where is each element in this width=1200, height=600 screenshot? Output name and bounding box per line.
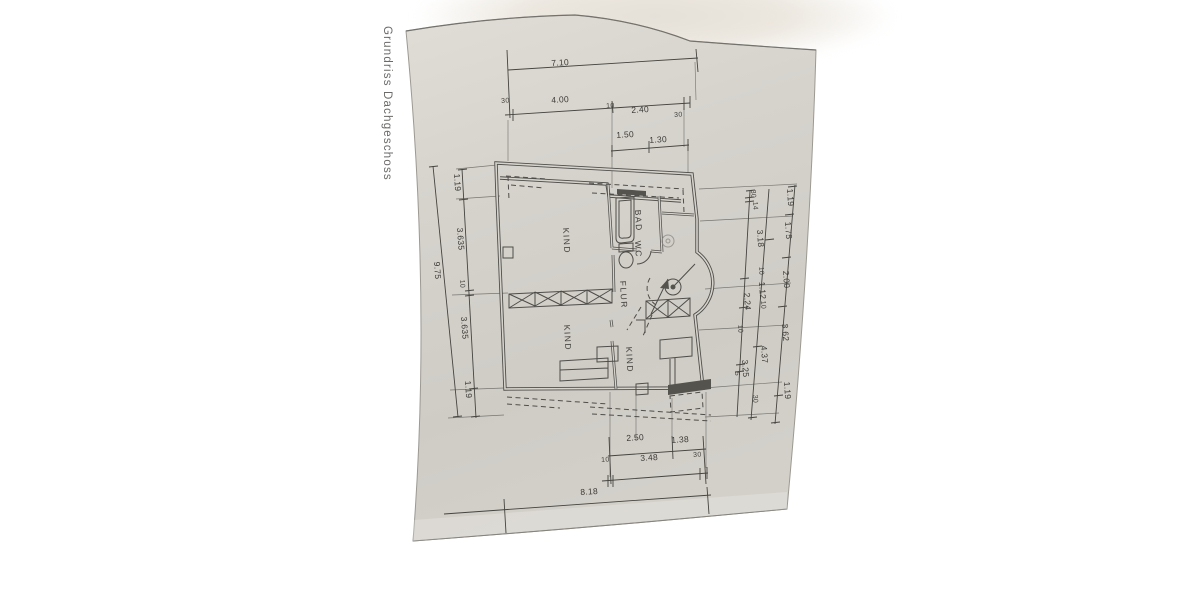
- room-label-kind-3: KIND: [624, 346, 635, 373]
- dim-label: 2.40: [631, 104, 649, 115]
- paper-sheet: [406, 15, 816, 541]
- dim-label: 8.18: [580, 486, 598, 497]
- dim-label: 1.75: [783, 221, 794, 239]
- floorplan-drawing: [0, 0, 1200, 600]
- dim-label: 30: [693, 451, 702, 458]
- dim-label: 1.19: [785, 188, 796, 206]
- dim-label: 1.19: [782, 381, 793, 399]
- dim-label: 1.50: [616, 129, 634, 140]
- dim-label: 10: [601, 456, 610, 463]
- dim-label: 2.50: [626, 432, 644, 443]
- dim-label: 3.62: [780, 323, 791, 341]
- dim-label: 14: [751, 202, 759, 211]
- dim-label: 4.00: [551, 94, 569, 105]
- room-label-kind-2: KIND: [562, 324, 573, 351]
- dim-label: 9.75: [432, 261, 443, 279]
- dim-label: 5: [733, 372, 740, 377]
- dim-label: 3.25: [740, 359, 751, 377]
- dim-label: 30: [751, 395, 759, 404]
- room-label-kind-1: KIND: [561, 227, 572, 254]
- dim-label: 10: [458, 280, 466, 289]
- dim-label: 10: [606, 102, 615, 109]
- room-label-flur: FLUR: [618, 280, 629, 309]
- dim-label: 1.19: [463, 380, 474, 398]
- dim-label: 10: [759, 301, 767, 310]
- dim-label: 1.12: [757, 281, 768, 299]
- room-label-bad: BAD: [633, 209, 644, 231]
- dim-label: 3.635: [455, 227, 467, 250]
- room-label-wc: WC: [633, 240, 644, 258]
- dim-label: 30: [749, 190, 757, 199]
- dim-label: 10: [736, 325, 744, 334]
- dim-label: 3.48: [640, 452, 658, 463]
- dim-label: 3.635: [459, 316, 471, 339]
- floorplan-photo: Grundriss Dachgeschoss KIND BAD WC FLUR …: [0, 0, 1200, 600]
- dim-label: 1.19: [452, 173, 463, 191]
- dim-label: 3.18: [755, 229, 766, 247]
- dim-label: 1.38: [671, 434, 689, 445]
- drawing-caption: Grundriss Dachgeschoss: [381, 26, 393, 181]
- dim-label: 30: [674, 111, 683, 118]
- dim-label: 7.10: [551, 57, 569, 68]
- dim-label: 30: [501, 97, 510, 104]
- dim-label: 10: [757, 267, 765, 276]
- dim-label: 2.00: [781, 270, 792, 288]
- dim-label: 2.24: [742, 292, 753, 310]
- dim-label: 4.37: [759, 345, 770, 363]
- dim-label: 1.30: [649, 134, 667, 145]
